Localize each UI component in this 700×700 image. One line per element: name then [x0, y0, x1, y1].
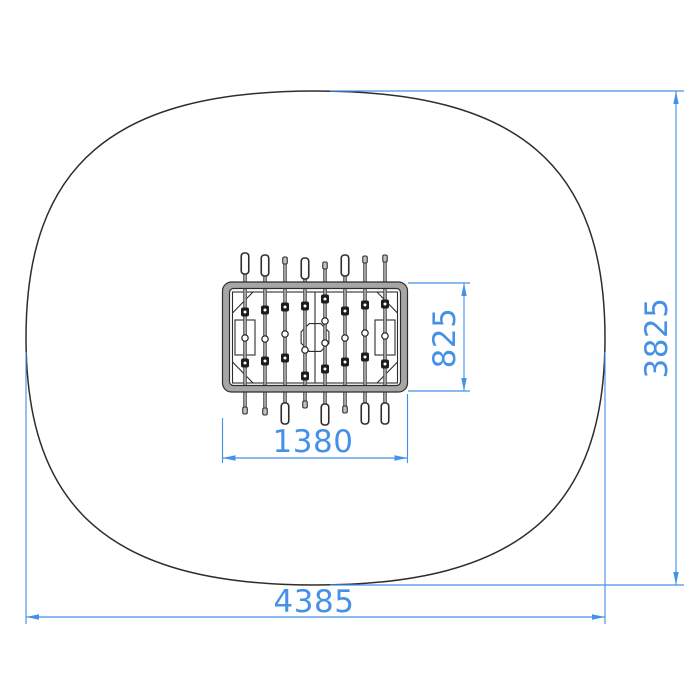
dimension-label-table-depth: 825 — [427, 308, 463, 369]
rod-bearing — [322, 318, 328, 324]
player-figure-dot — [324, 298, 327, 301]
player-figure-dot — [364, 356, 367, 359]
dimension-arrowhead — [673, 91, 678, 104]
player-figure-dot — [264, 360, 267, 363]
player-figure-dot — [384, 363, 387, 366]
player-figure-dot — [244, 311, 247, 314]
rod-handle — [281, 403, 289, 424]
rod-handle — [261, 255, 269, 276]
rod-handle — [381, 403, 389, 424]
dimension-table-width: 1380 — [223, 394, 408, 463]
dimension-arrowhead — [461, 283, 466, 296]
drawing-canvas: 138082543853825 — [0, 0, 700, 700]
rod-handle — [361, 403, 369, 424]
rod-tip — [243, 407, 248, 414]
dimension-arrowhead — [592, 614, 605, 619]
dimension-arrowhead — [223, 455, 236, 460]
rod-tip — [263, 408, 268, 415]
rod-bearing — [342, 335, 348, 341]
foosball-table — [223, 253, 408, 425]
rod-handle — [241, 253, 249, 274]
rod-bearing — [382, 333, 388, 339]
rod-bearing — [242, 335, 248, 341]
rod-tip — [363, 256, 368, 263]
playfield — [233, 292, 398, 383]
player-figure-dot — [364, 304, 367, 307]
rod-bearing — [282, 331, 288, 337]
dimension-label-zone-height: 3825 — [639, 298, 675, 379]
dimensions: 138082543853825 — [26, 91, 684, 624]
dimension-arrowhead — [395, 455, 408, 460]
player-figure-dot — [324, 368, 327, 371]
dimension-zone-width: 4385 — [26, 352, 605, 624]
player-figure-dot — [304, 375, 307, 378]
dimension-label-zone-width: 4385 — [274, 584, 355, 620]
rod-bearing — [362, 330, 368, 336]
dimension-arrowhead — [673, 572, 678, 585]
dimension-label-table-width: 1380 — [273, 424, 354, 460]
rod-bearing — [302, 347, 308, 353]
rod-bearing — [322, 340, 328, 346]
player-figure-dot — [284, 357, 287, 360]
rod-handle — [301, 258, 309, 279]
rod-handle — [321, 404, 329, 425]
player-figure-dot — [244, 362, 247, 365]
dimension-arrowhead — [461, 378, 466, 391]
rod-handle — [341, 255, 349, 276]
technical-drawing: 138082543853825 — [0, 0, 700, 700]
dimension-arrowhead — [26, 614, 39, 619]
player-figure-dot — [284, 306, 287, 309]
player-figure-dot — [304, 305, 307, 308]
rod-bearing — [262, 336, 268, 342]
player-figure-dot — [384, 303, 387, 306]
rod-tip — [283, 257, 288, 264]
player-figure-dot — [344, 310, 347, 313]
dimension-table-depth: 825 — [408, 283, 470, 391]
player-figure-dot — [264, 309, 267, 312]
rod-tip — [323, 262, 328, 269]
rod-tip — [383, 255, 388, 262]
rod-tip — [343, 406, 348, 413]
player-figure-dot — [344, 361, 347, 364]
rod-tip — [303, 401, 308, 408]
